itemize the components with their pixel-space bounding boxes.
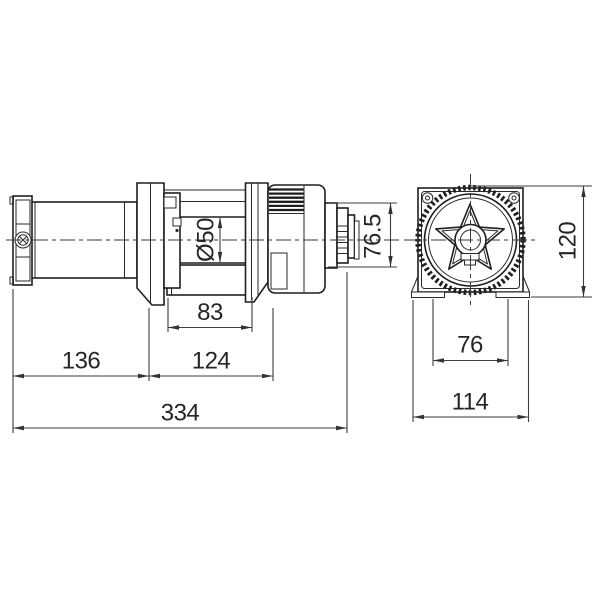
motor-section-label: 136 bbox=[62, 348, 101, 375]
right-support-plate bbox=[246, 183, 269, 302]
gear-section-label: 124 bbox=[192, 348, 231, 375]
mount-foot-right bbox=[496, 292, 530, 298]
mount-hole-spacing-label: 76 bbox=[457, 332, 483, 359]
dimension-drum-length: 83 bbox=[168, 297, 252, 332]
front-view bbox=[404, 174, 537, 307]
corner-screw-icon bbox=[509, 193, 520, 204]
drum-diameter-label: Ø50 bbox=[193, 218, 220, 262]
drum-length-label: 83 bbox=[197, 299, 223, 326]
dimension-mount-hole-spacing: 76 bbox=[433, 299, 508, 366]
drawing-canvas: Ø50 76.5 83 136 bbox=[0, 0, 600, 600]
dimension-motor-section: 136 bbox=[13, 289, 149, 433]
end-cap-height-label: 76.5 bbox=[360, 214, 387, 259]
dimension-drum-diameter: Ø50 bbox=[193, 217, 223, 263]
mount-foot-left bbox=[412, 292, 445, 298]
side-clip bbox=[173, 218, 181, 226]
base-width-label: 114 bbox=[452, 389, 489, 416]
clutch-end-stack bbox=[325, 203, 359, 268]
winch-technical-drawing: Ø50 76.5 83 136 bbox=[0, 0, 600, 600]
overall-length-label: 334 bbox=[161, 400, 200, 427]
overall-height-label: 120 bbox=[555, 222, 582, 261]
